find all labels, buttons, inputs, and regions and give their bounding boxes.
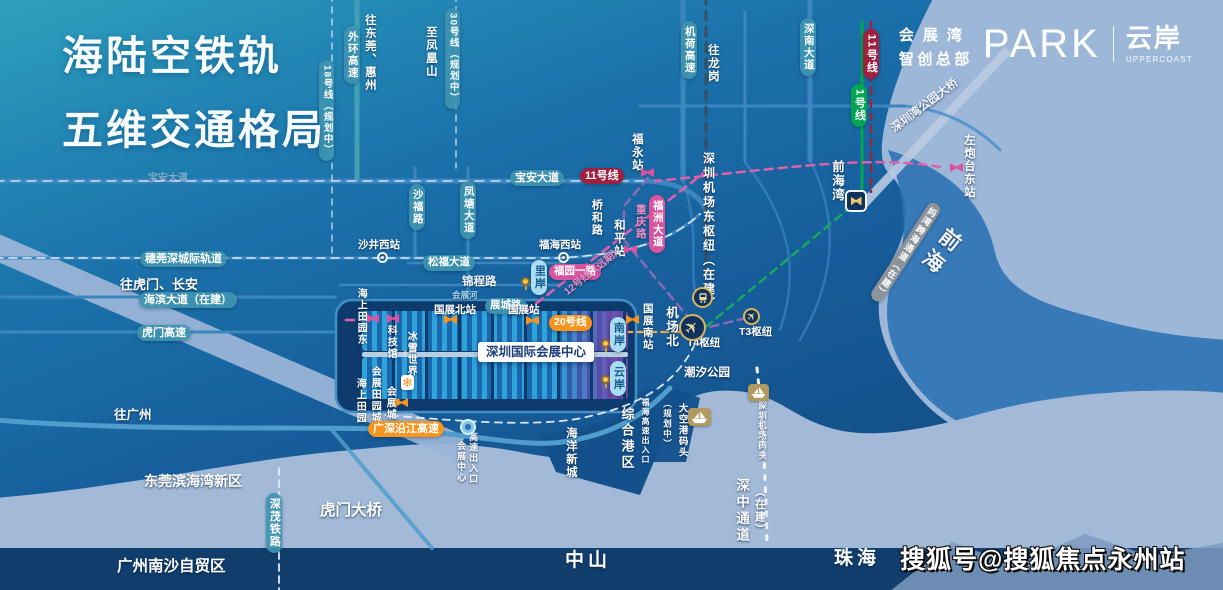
zhongshan-city-text: 中山 bbox=[565, 550, 611, 571]
guangzhou-nansha-text: 广州南沙自贸区 bbox=[117, 558, 226, 575]
suiwanshen-rail-pill: 穗莞深城际轨道 bbox=[140, 251, 227, 267]
shennan-avenue-pill: 深南大道 bbox=[800, 18, 816, 76]
airport-ferry-text: 深圳机场码头 bbox=[757, 401, 767, 461]
line20-pill: 20号线 bbox=[549, 315, 592, 331]
t4-airport-icon: ✈ bbox=[679, 314, 706, 341]
guozhannan-station-text: 国展南站 bbox=[641, 303, 653, 351]
zonghe-gangqu-text: 综合港区 bbox=[619, 407, 634, 471]
nanan-project-pin bbox=[601, 339, 610, 352]
guangshen-yanjiang-expwy-pill: 广深沿江高速 bbox=[368, 421, 444, 437]
dakonggang-ferry-text: 大空港码头 bbox=[676, 403, 687, 458]
yunan-project-pill: 云岸 bbox=[610, 361, 626, 396]
haishangtianyuandong-station-text: 海上田园东 bbox=[355, 288, 366, 346]
to-guangzhou-text: 往广州 bbox=[114, 408, 152, 422]
convention-center-box: 深圳国际会展中心 bbox=[478, 342, 594, 362]
expwy-exit-huizhan-text: 会展中心 bbox=[456, 441, 466, 483]
page-title: 海陆空铁轨 五维交通格局 bbox=[62, 22, 326, 170]
guihuazhong-text: （规划中） bbox=[662, 399, 672, 449]
to-dongguan-huizhou-text: 往东莞、惠州 bbox=[363, 14, 376, 92]
huizhancheng-station-text: 会展城 bbox=[384, 386, 395, 421]
line11-pill-vertical: 11号线 bbox=[863, 29, 879, 79]
chaoxi-park-text: 潮汐公园 bbox=[684, 367, 730, 380]
brand-logo-divider bbox=[1113, 26, 1114, 62]
shajingxi-station-marker bbox=[377, 252, 388, 263]
kejiguan-station-text: 科技馆 bbox=[385, 325, 396, 360]
to-humen-changan-text: 往虎门、长安 bbox=[120, 278, 198, 293]
dakonggang-ferry-icon bbox=[688, 408, 711, 426]
nanan-project-pill: 南岸 bbox=[610, 317, 626, 352]
lian-project-pin bbox=[521, 277, 530, 290]
highway-exit-icon bbox=[460, 419, 476, 435]
qianhaiwan-interchange-icon bbox=[845, 190, 867, 212]
haiyang-xincheng-text: 海洋新城 bbox=[564, 427, 577, 479]
dongguan-binhaiwan-text: 东莞滨海湾新区 bbox=[144, 474, 242, 490]
shenzhong-corridor-sub-text: （在建） bbox=[753, 486, 765, 536]
lian-project-pill: 里岸 bbox=[531, 260, 547, 295]
waihuan-expwy-pill: 外环高速 bbox=[344, 26, 360, 84]
fuhaixi-station-text: 福海西站 bbox=[539, 240, 581, 252]
chongqing-road-text: 重庆路 bbox=[634, 204, 646, 240]
snowworld-icon: ❄ bbox=[401, 375, 414, 390]
guozhanbei-station-text: 国展北站 bbox=[434, 305, 476, 317]
shenmao-railway-pill: 深茂铁路 bbox=[266, 493, 282, 553]
haibin-avenue-pill: 海滨大道（在建） bbox=[139, 292, 237, 308]
t3-airport-icon: ✈ bbox=[743, 308, 760, 325]
brand-logo-park: PARK bbox=[983, 24, 1101, 64]
shajingxi-station-text: 沙井西站 bbox=[358, 240, 400, 252]
fuhaixi-station-marker bbox=[558, 252, 569, 263]
brand-logo-en: UPPERCOAST bbox=[1126, 55, 1193, 64]
shafu-road-pill: 沙福路 bbox=[409, 184, 425, 230]
fuyong-station-text: 福永站 bbox=[630, 133, 643, 172]
jichangbei-station-text: 机场北 bbox=[664, 306, 678, 348]
brand-logo: 会展湾 智创总部 PARK 云岸 UPPERCOAST bbox=[899, 24, 1193, 69]
qianhaiwan-station-text: 前海湾 bbox=[830, 160, 844, 202]
bingxueshijie-text: 冰雪世界 bbox=[405, 331, 416, 377]
title-line2: 五维交通格局 bbox=[62, 96, 326, 156]
watermark: 搜狐号@搜狐焦点永州站 bbox=[900, 540, 1185, 576]
fuzhou-avenue-pill: 福洲大道 bbox=[649, 195, 665, 253]
line11-pill-horizontal: 11号线 bbox=[580, 168, 624, 184]
haishangtianyuan-text: 海上田园 bbox=[354, 378, 365, 424]
jichangbei-metro-icon bbox=[692, 287, 713, 308]
huizhantianyuancheng-text: 会展田园城 bbox=[369, 366, 380, 424]
transport-map: 外环高速18号线（规划中）往东莞、惠州30号线（规划中）至凤凰山机荷高速往龙岗深… bbox=[0, 0, 1223, 590]
fengtang-avenue-pill: 凤塘大道 bbox=[460, 181, 476, 239]
expwy-exit-text: 高速出入口 bbox=[468, 432, 478, 485]
qiaohe-road-text: 桥和路 bbox=[590, 199, 602, 237]
baoan-avenue-pill: 宝安大道 bbox=[510, 170, 564, 186]
brand-logo-right: 云岸 UPPERCOAST bbox=[1126, 24, 1193, 64]
shenzhong-corridor-text: 深中通道 bbox=[734, 478, 749, 544]
to-longgang-text: 往龙岗 bbox=[706, 44, 719, 83]
zuopaotaidong-station-text: 左炮台东站 bbox=[962, 134, 975, 199]
to-fenghuangshan-text: 至凤凰山 bbox=[424, 26, 437, 78]
baoan-avenue-faint-text: 宝安大道 bbox=[148, 173, 188, 184]
huizhan-river-text: 会展河 bbox=[452, 291, 478, 301]
jihe-expwy-pill: 机荷高速 bbox=[681, 21, 697, 79]
brand-logo-cn2: 云岸 bbox=[1126, 24, 1193, 53]
line30-pill: 30号线（规划中） bbox=[445, 8, 460, 109]
brand-logo-cn: 会展湾 智创总部 bbox=[899, 24, 973, 69]
t3-hub-text: T3枢纽 bbox=[739, 327, 772, 339]
title-line1: 海陆空铁轨 bbox=[62, 22, 326, 82]
guozhan-station-text: 国展站 bbox=[508, 305, 540, 317]
humen-bridge-text: 虎门大桥 bbox=[320, 502, 382, 519]
brand-logo-line1: 会展湾 bbox=[899, 24, 973, 45]
songfu-avenue-pill: 松福大道 bbox=[423, 255, 475, 271]
fuhai-expwy-exit-text: 福海高速出入口 bbox=[640, 398, 649, 465]
yunan-project-pin bbox=[601, 375, 610, 388]
jincheng-road-text: 锦程路 bbox=[462, 276, 497, 289]
humen-expwy-pill: 虎门高速 bbox=[137, 325, 191, 341]
line1-pill: 1号线 bbox=[851, 84, 867, 127]
brand-logo-line2: 智创总部 bbox=[899, 48, 973, 69]
airport-ferry-icon bbox=[748, 384, 769, 401]
zhuhai-city-text: 珠海 bbox=[834, 548, 880, 569]
